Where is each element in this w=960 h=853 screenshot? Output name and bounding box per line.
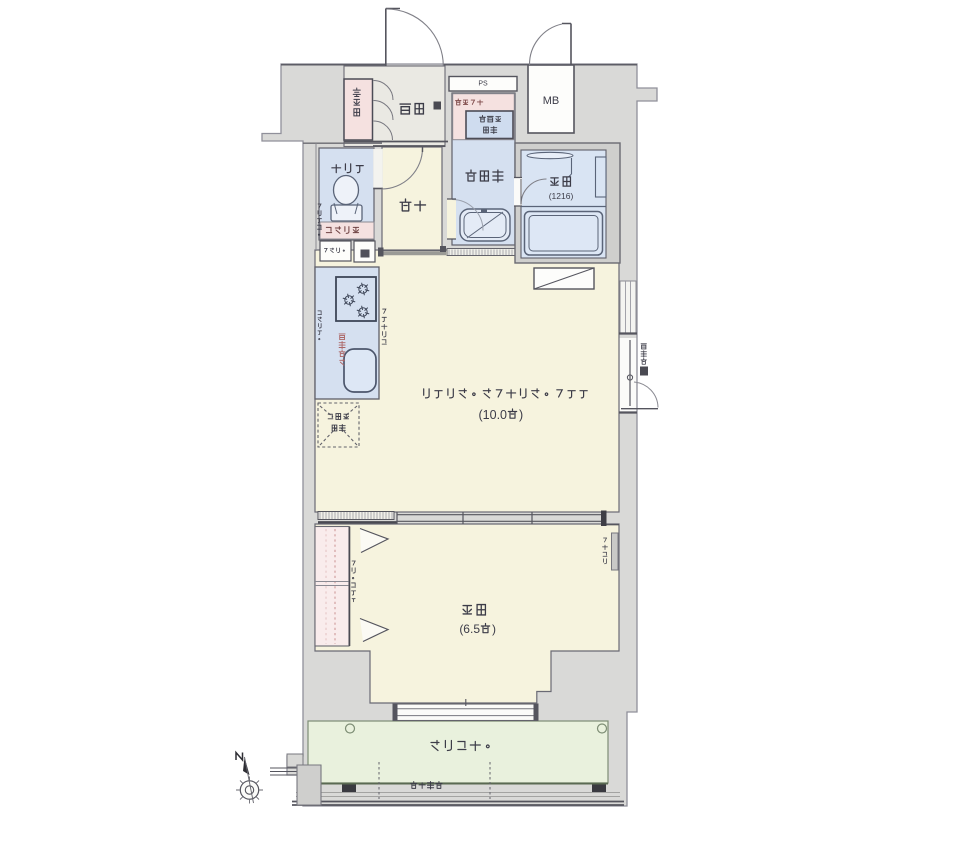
svg-text:): ) <box>492 622 496 636</box>
svg-text:MB: MB <box>543 95 560 107</box>
svg-text:(1216): (1216) <box>549 191 574 201</box>
svg-text:): ) <box>519 408 523 422</box>
svg-text:(10.0: (10.0 <box>479 408 508 422</box>
svg-text:(6.5: (6.5 <box>459 622 480 636</box>
svg-text:PS: PS <box>478 81 488 88</box>
